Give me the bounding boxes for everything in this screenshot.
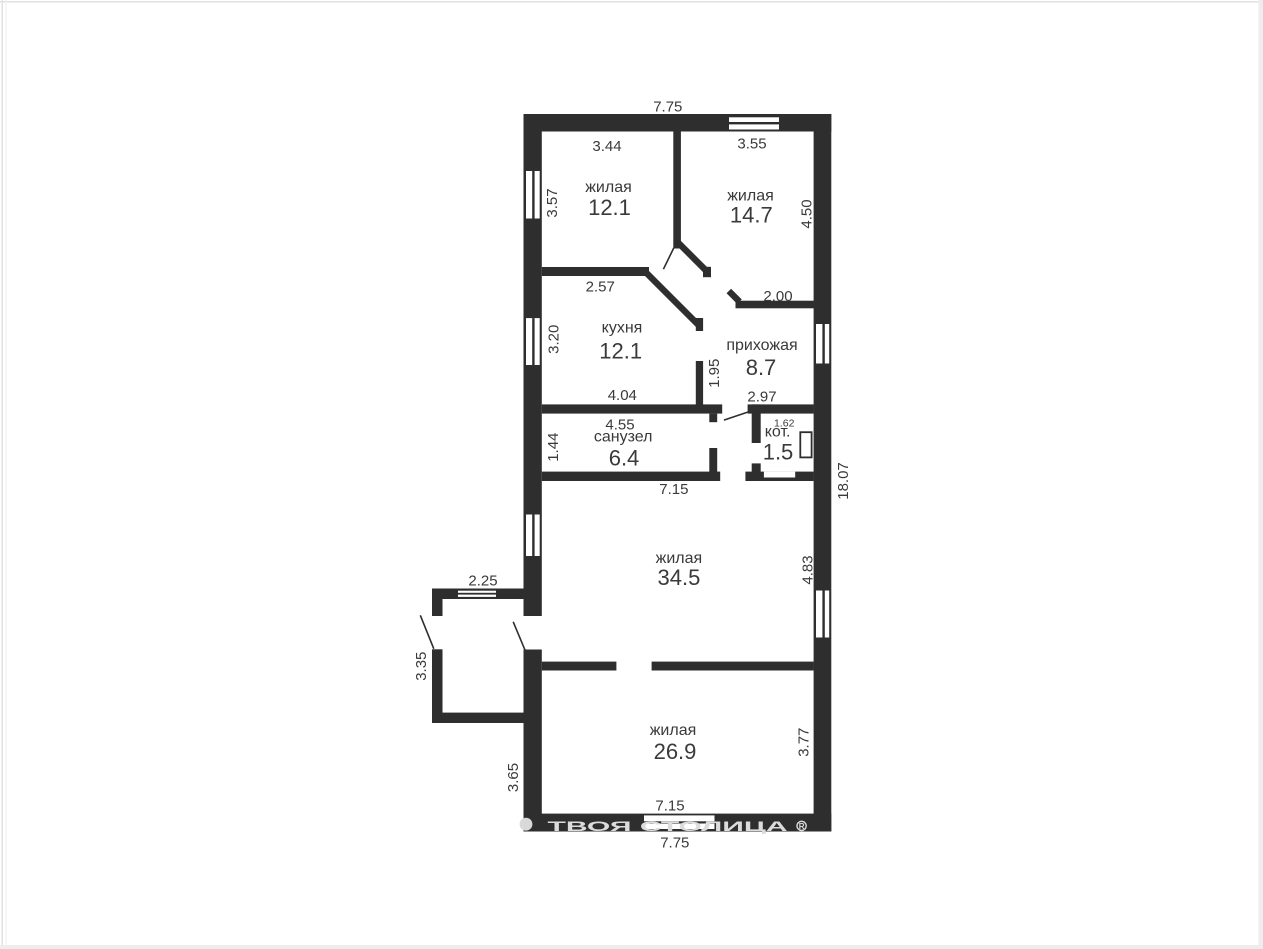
svg-text:ТВОЯ СТОЛИЦА: ТВОЯ СТОЛИЦА	[548, 818, 788, 834]
svg-text:жилая: жилая	[650, 722, 697, 739]
svg-text:7.15: 7.15	[655, 797, 684, 814]
svg-text:4.83: 4.83	[799, 555, 816, 584]
svg-text:1.95: 1.95	[706, 359, 723, 388]
svg-text:14.7: 14.7	[730, 203, 773, 228]
svg-text:2.25: 2.25	[468, 572, 497, 589]
svg-text:1.62: 1.62	[774, 418, 795, 430]
svg-text:1.44: 1.44	[545, 433, 562, 462]
svg-text:7.15: 7.15	[659, 481, 688, 498]
svg-text:3.55: 3.55	[737, 136, 766, 153]
svg-text:4.04: 4.04	[608, 387, 637, 404]
svg-text:8.7: 8.7	[746, 355, 777, 380]
svg-text:4.55: 4.55	[605, 417, 634, 434]
svg-text:12.1: 12.1	[588, 195, 631, 220]
svg-text:2.97: 2.97	[747, 389, 776, 406]
svg-text:2.57: 2.57	[586, 278, 615, 295]
svg-text:6.4: 6.4	[609, 446, 640, 471]
svg-text:34.5: 34.5	[657, 565, 700, 590]
svg-text:1.5: 1.5	[763, 440, 794, 465]
svg-text:7.75: 7.75	[653, 99, 682, 116]
svg-text:кухня: кухня	[602, 320, 643, 337]
svg-text:3.35: 3.35	[413, 652, 430, 681]
svg-text:жилая: жилая	[585, 179, 632, 196]
svg-text:18.07: 18.07	[835, 462, 852, 500]
svg-text:3.57: 3.57	[544, 188, 561, 217]
svg-text:4.50: 4.50	[798, 199, 815, 228]
svg-text:3.77: 3.77	[795, 728, 812, 757]
svg-text:3.20: 3.20	[545, 325, 562, 354]
svg-text:3.65: 3.65	[505, 763, 522, 792]
svg-text:12.1: 12.1	[599, 339, 642, 364]
svg-text:прихожая: прихожая	[726, 337, 797, 354]
svg-text:7.75: 7.75	[660, 834, 689, 851]
svg-text:3.44: 3.44	[592, 138, 621, 155]
svg-text:R: R	[799, 822, 805, 831]
svg-text:26.9: 26.9	[654, 739, 697, 764]
svg-text:2.00: 2.00	[763, 288, 792, 305]
